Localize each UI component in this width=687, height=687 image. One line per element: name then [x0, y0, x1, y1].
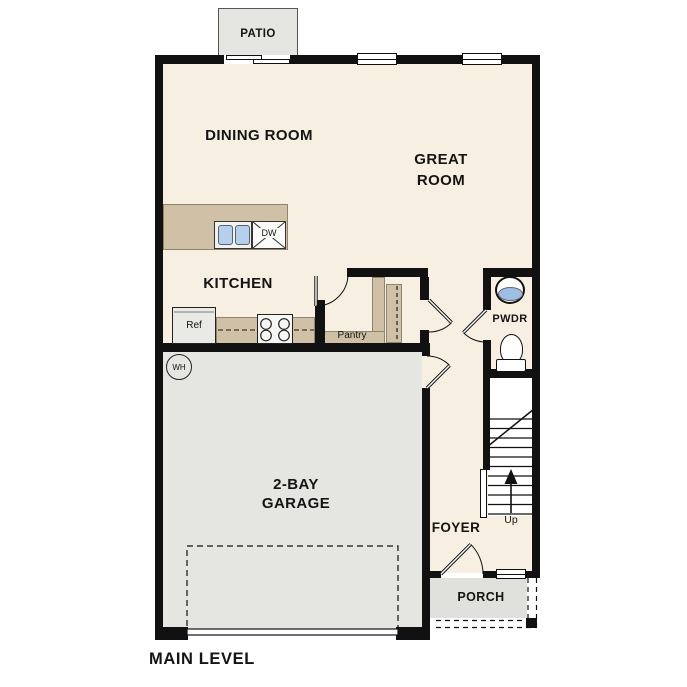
stair-handrail	[480, 469, 487, 518]
patio-slider-panel-right	[253, 59, 290, 64]
pantry-label: Pantry	[327, 330, 377, 341]
refrigerator: Ref	[172, 307, 216, 344]
garage-label-line1: 2-BAY	[236, 476, 356, 493]
wall-foyer-porch-a	[422, 571, 441, 578]
stairs-up-label: Up	[496, 514, 526, 526]
refrigerator-label: Ref	[186, 320, 202, 331]
wall-closet-right-upper	[420, 277, 429, 300]
patio-label: PATIO	[218, 28, 298, 40]
porch-label: PORCH	[441, 590, 521, 604]
island-sink-basin-left	[218, 225, 233, 245]
pwdr-sink-basin	[498, 287, 523, 301]
wall-stairs-left	[483, 378, 490, 470]
wall-pantry-greatroom	[347, 268, 428, 277]
wall-garage-right	[422, 388, 430, 640]
wall-foyer-porch-c	[526, 571, 540, 578]
toilet-base	[496, 359, 526, 372]
stove	[257, 314, 293, 344]
wall-garage-bottom-left	[155, 627, 188, 640]
garage-label-line2: GARAGE	[236, 495, 356, 512]
foyer-label: FOYER	[414, 520, 498, 535]
window-greatroom-1	[357, 53, 397, 65]
great-room-label-line1: GREAT	[391, 151, 491, 168]
window-greatroom-2	[462, 53, 502, 65]
floor-plan: Ref WH	[0, 0, 687, 687]
wall-closet-right-lower	[420, 330, 429, 352]
porch-post	[526, 618, 537, 628]
island-sink-basin-right	[235, 225, 250, 245]
stairwell-floor	[488, 378, 532, 516]
closet-shelf	[386, 284, 402, 343]
wall-kitchen-garage	[155, 343, 430, 352]
water-heater-label: WH	[172, 363, 185, 372]
window-porch	[496, 569, 526, 579]
wall-pantry-stub	[315, 300, 325, 345]
great-room-label-line2: ROOM	[391, 172, 491, 189]
dishwasher-label: DW	[258, 228, 280, 238]
water-heater: WH	[166, 354, 192, 380]
wall-foyer-porch-b	[483, 571, 496, 578]
plan-title: MAIN LEVEL	[149, 650, 255, 669]
kitchen-label: KITCHEN	[178, 275, 298, 292]
dining-room-label: DINING ROOM	[179, 127, 339, 144]
pwdr-label: PWDR	[484, 313, 536, 325]
